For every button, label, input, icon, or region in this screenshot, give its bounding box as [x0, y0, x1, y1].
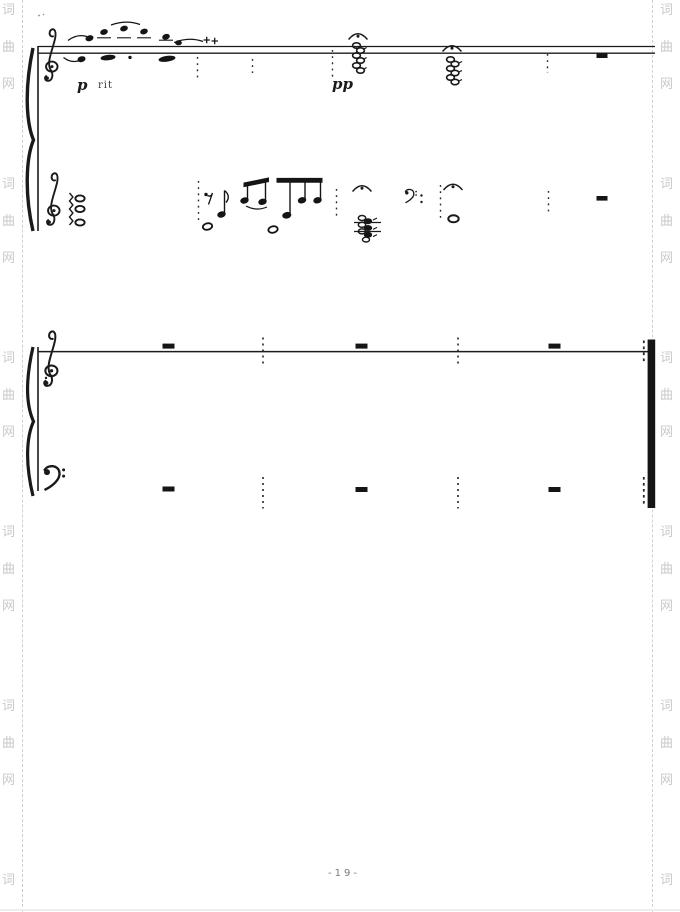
whole-rests-lower	[163, 487, 561, 493]
dotted-barlines-lower	[263, 477, 458, 509]
treble-clef-icon	[45, 29, 58, 81]
treble-clef-icon	[47, 173, 60, 225]
dotted-barlines-lower	[199, 181, 549, 222]
bass-clef-icon	[44, 466, 65, 489]
bass-clef-change-icon	[405, 189, 417, 202]
final-barline	[644, 340, 655, 509]
clef-change-dots	[420, 194, 422, 203]
dotted-barlines-upper	[263, 338, 458, 365]
melody-upper-voice	[64, 22, 218, 62]
score-page: 词曲网词曲网词曲网词曲网词曲网词 词曲网词曲网词曲网词曲网词曲网词 p rit …	[0, 0, 680, 912]
slur	[111, 22, 140, 25]
system-brace	[28, 347, 34, 496]
staff-lines-upper	[38, 47, 655, 54]
chord-cluster-3	[353, 186, 381, 242]
music-notation	[0, 0, 680, 912]
fermata-icon	[444, 184, 462, 189]
dotted-barlines-upper	[198, 50, 548, 78]
arpeggio-icon	[70, 193, 73, 225]
system-brace	[27, 48, 33, 231]
chord-cluster-2	[443, 46, 462, 85]
ornament-marks	[204, 37, 218, 44]
fermata-icon	[353, 186, 371, 191]
whole-rests-upper	[163, 344, 561, 349]
whole-rest-icon	[597, 196, 608, 201]
notes-lower-staff	[202, 178, 322, 234]
print-artifact-dots	[38, 14, 44, 17]
whole-note-icon	[448, 215, 458, 222]
fermata-icon	[349, 34, 367, 39]
ledger-lines	[97, 38, 173, 40]
eighth-rest-icon	[204, 193, 212, 205]
whole-note-chord	[75, 195, 84, 225]
slur	[246, 206, 267, 209]
system-1	[27, 14, 655, 242]
whole-rest-icon	[597, 53, 608, 58]
slur	[68, 36, 87, 41]
system-2	[28, 331, 656, 508]
